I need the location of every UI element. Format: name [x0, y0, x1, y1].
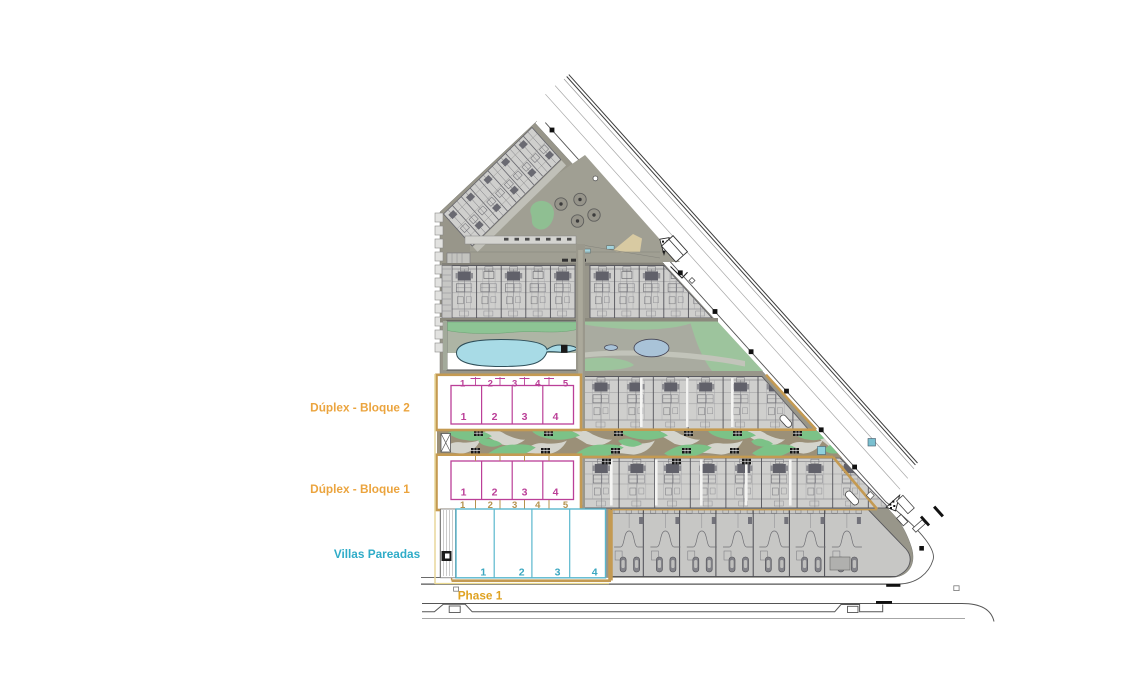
svg-text:Phase 1: Phase 1 — [458, 589, 503, 603]
svg-text:Villas Pareadas: Villas Pareadas — [334, 547, 421, 561]
svg-text:2: 2 — [519, 567, 525, 579]
svg-text:Dúplex - Bloque 1: Dúplex - Bloque 1 — [310, 482, 410, 496]
svg-text:4: 4 — [592, 567, 598, 579]
svg-text:4: 4 — [553, 487, 559, 499]
svg-text:1: 1 — [461, 411, 467, 423]
svg-text:3: 3 — [555, 567, 561, 579]
svg-text:Dúplex - Bloque 2: Dúplex - Bloque 2 — [310, 401, 410, 415]
svg-text:2: 2 — [492, 411, 498, 423]
svg-text:5: 5 — [563, 379, 569, 390]
svg-text:1: 1 — [480, 567, 486, 579]
svg-text:1: 1 — [460, 379, 466, 390]
svg-text:3: 3 — [512, 379, 517, 390]
svg-text:4: 4 — [535, 379, 541, 390]
svg-text:3: 3 — [522, 411, 528, 423]
svg-text:2: 2 — [488, 379, 493, 390]
svg-text:3: 3 — [522, 487, 528, 499]
svg-text:2: 2 — [492, 487, 498, 499]
svg-text:1: 1 — [461, 487, 467, 499]
svg-text:4: 4 — [553, 411, 559, 423]
